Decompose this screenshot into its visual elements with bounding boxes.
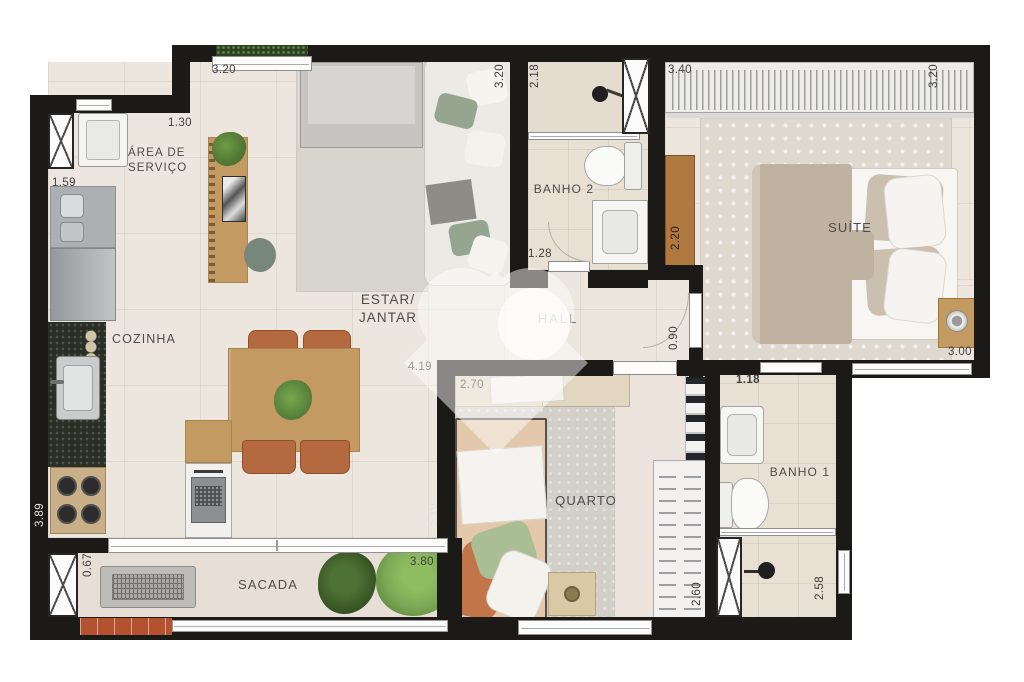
dining-chair-bottom-left <box>242 440 296 474</box>
room-label-quarto: QUARTO <box>548 493 624 510</box>
sofa-throw-gray <box>425 179 476 225</box>
room-label-sacada: SACADA <box>228 577 308 594</box>
laundry-tank-basin <box>86 120 120 160</box>
kitchen-faucet <box>50 380 64 384</box>
banho2-toilet-tank <box>624 142 642 190</box>
dim-servico-width: 1.30 <box>168 117 192 129</box>
suite-side-cabinet <box>665 155 695 271</box>
dim-sacada-depth: 0.67 <box>82 553 94 577</box>
banho1-basin <box>727 414 757 456</box>
dim-sacada-width: 3.80 <box>410 556 434 568</box>
sliding-door-sacada <box>108 538 448 553</box>
suite-bed-blanket <box>752 164 852 344</box>
dim-banho1-height: 2.58 <box>814 576 826 600</box>
dim-estar-width: 4.19 <box>408 361 432 373</box>
banho2-basin <box>602 210 638 254</box>
cooktop-burner-1 <box>57 476 77 496</box>
cooktop-burner-2 <box>81 476 101 496</box>
room-label-area-servico: ÁREA DE SERVIÇO <box>128 146 198 176</box>
floor-plan-canvas: ÁREA DE SERVIÇO COZINHA ESTAR/ JANTAR HA… <box>0 0 1024 682</box>
suite-cushion-center <box>844 230 874 280</box>
oven-handle <box>194 470 223 473</box>
green-pouf <box>244 238 276 272</box>
door-quarto-leaf <box>613 361 677 375</box>
dim-banho1-width: 1.18 <box>736 374 760 386</box>
room-label-banho2: BANHO 2 <box>524 182 604 198</box>
window-suite-bottom <box>852 363 972 375</box>
shelf-picture <box>222 176 246 222</box>
door-suite-leaf <box>689 293 702 348</box>
suite-wardrobe-hangers <box>672 70 968 110</box>
wall-sacada-left-stub <box>48 538 108 553</box>
wall-hall-step <box>648 265 703 280</box>
dim-banho2-width: 1.28 <box>528 248 552 260</box>
refrigerator <box>50 248 116 321</box>
washing-machine-door <box>60 194 84 218</box>
window-service-top <box>76 99 112 111</box>
sliding-door-panel-break <box>276 540 278 551</box>
banho2-shower-head-icon <box>592 86 608 102</box>
wall-banho2-right <box>648 62 665 280</box>
dim-cozinha-run: 3.89 <box>34 503 46 527</box>
single-bed-blanket <box>457 445 548 525</box>
wall-left-outer <box>30 95 48 640</box>
dim-suite-wardrobe-width: 3.40 <box>668 64 692 76</box>
banho1-toilet-bowl <box>731 478 769 530</box>
oven-window <box>195 486 222 506</box>
shaft-bottom-left <box>48 553 78 617</box>
sofa-cushion-white-2 <box>464 130 506 169</box>
shoe-rack <box>685 375 707 461</box>
room-label-hall: HALL <box>528 311 588 328</box>
dim-banho2-height: 2.18 <box>529 64 541 88</box>
wall-banho2-door-right <box>588 270 648 288</box>
dim-suite-bed-wall: 3.00 <box>948 346 972 358</box>
door-banho1-leaf <box>760 362 822 373</box>
dim-estar-top-width: 3.20 <box>212 64 236 76</box>
dim-suite-cabinet-run: 2.20 <box>670 226 682 250</box>
door-banho2-leaf <box>548 261 590 272</box>
quarto-wardrobe-textile <box>489 373 564 405</box>
sacada-brick-tiles <box>80 618 172 635</box>
dim-servico-depth: 1.59 <box>52 177 76 189</box>
shaft-top-middle <box>622 58 650 134</box>
shaft-top-left <box>48 113 74 169</box>
window-banho1-right <box>838 550 850 594</box>
room-label-banho1: BANHO 1 <box>760 465 840 481</box>
dim-quarto-width: 2.70 <box>460 379 484 391</box>
window-quarto-bottom <box>518 620 652 635</box>
banho1-glass-partition <box>718 528 836 536</box>
sacada-railing <box>172 620 448 632</box>
suite-lamp <box>946 310 968 332</box>
wall-hall-bottom-left <box>437 360 613 376</box>
oven-tower-top <box>185 420 232 463</box>
wall-hall-bottom-corner <box>677 360 705 376</box>
cooktop <box>50 467 106 534</box>
room-label-suite: SUÍTE <box>818 220 882 237</box>
quarto-pouf-center <box>564 586 580 602</box>
suite-wardrobe-front <box>665 112 974 118</box>
shaft-banho1 <box>716 537 742 617</box>
ac-bench-grille <box>112 574 184 600</box>
wall-banho2-left <box>510 62 528 288</box>
room-label-estar-jantar: ESTAR/ JANTAR <box>328 291 448 326</box>
room-label-cozinha: COZINHA <box>104 331 184 347</box>
dim-suite-height: 3.20 <box>928 64 940 88</box>
cooktop-burner-4 <box>81 504 101 524</box>
kitchen-sink-bowl <box>63 365 93 411</box>
wall-right-outer <box>974 45 990 378</box>
washing-machine-panel <box>60 222 84 242</box>
banho2-toilet-bowl <box>584 146 626 186</box>
suite-pillow-white-top <box>882 173 947 251</box>
quarto-closet-clothes-left <box>659 468 676 610</box>
banho1-shower-head-icon <box>758 562 775 579</box>
tv-sideboard-top <box>308 66 415 124</box>
dining-chair-bottom-right <box>300 440 350 474</box>
dim-hall-passage: 0.90 <box>668 326 680 350</box>
dim-quarto-closet-run: 2.60 <box>691 582 703 606</box>
wall-banho2-door-left <box>510 270 548 288</box>
dim-estar-full-height: 5.10 <box>427 503 439 527</box>
wall-top-join <box>172 45 190 113</box>
cooktop-burner-3 <box>57 504 77 524</box>
dim-estar-right-height: 3.20 <box>494 64 506 88</box>
